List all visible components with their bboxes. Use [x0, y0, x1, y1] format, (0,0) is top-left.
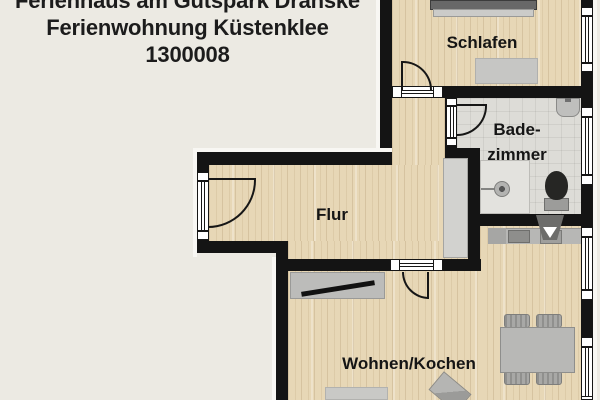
- hallway-nook-floor: [392, 87, 445, 165]
- floor-plan: Schlafen Bade- zimmer Flur Wohnen/Kochen…: [0, 0, 600, 400]
- chair: [536, 371, 562, 385]
- window-symbol: [581, 7, 593, 72]
- wall: [468, 214, 593, 226]
- window-symbol: [581, 227, 593, 300]
- wall: [197, 241, 288, 253]
- wall-outline: [272, 257, 276, 400]
- plan-title-line1: Ferienhaus am Gutspark Dranske: [10, 0, 365, 14]
- window-symbol: [581, 337, 593, 400]
- toilet-icon: [545, 171, 568, 200]
- chair: [504, 314, 530, 328]
- wardrobe: [443, 158, 468, 258]
- shower-arm: [481, 188, 495, 190]
- chair: [504, 371, 530, 385]
- kitchen-floor: [480, 226, 581, 400]
- dining-table: [500, 327, 575, 373]
- wall: [276, 259, 481, 271]
- kitchen-counter-segment: [488, 228, 506, 244]
- wall-outline: [593, 0, 597, 400]
- wall: [380, 0, 392, 165]
- plan-title: Ferienhaus am Gutspark Dranske Ferienwoh…: [10, 0, 365, 68]
- plan-title-line2: Ferienwohnung Küstenklee: [10, 14, 365, 41]
- room-label-living: Wohnen/Kochen: [324, 354, 494, 374]
- room-label-bathroom: Bade- zimmer: [467, 117, 567, 167]
- shower-head-icon: [494, 181, 510, 197]
- living-door-frame: [390, 259, 443, 271]
- plan-title-line3: 1300008: [10, 41, 365, 68]
- chair: [536, 314, 562, 328]
- bed-foot-bench: [433, 9, 534, 17]
- wall: [197, 152, 392, 165]
- wall-outline: [376, 0, 380, 152]
- window-symbol: [581, 107, 593, 185]
- room-label-bedroom: Schlafen: [412, 33, 552, 53]
- washbasin-tap: [565, 98, 571, 102]
- bathroom-door-frame: [446, 98, 457, 146]
- room-label-bathroom-line2: zimmer: [467, 142, 567, 167]
- wall-outline: [193, 148, 392, 152]
- room-label-hallway: Flur: [300, 205, 364, 225]
- room-label-bathroom-line1: Bade-: [467, 117, 567, 142]
- bedroom-rug: [475, 58, 538, 84]
- extractor-hood-funnel: [543, 227, 557, 238]
- living-rug: [325, 387, 388, 400]
- stove-icon: [508, 230, 530, 243]
